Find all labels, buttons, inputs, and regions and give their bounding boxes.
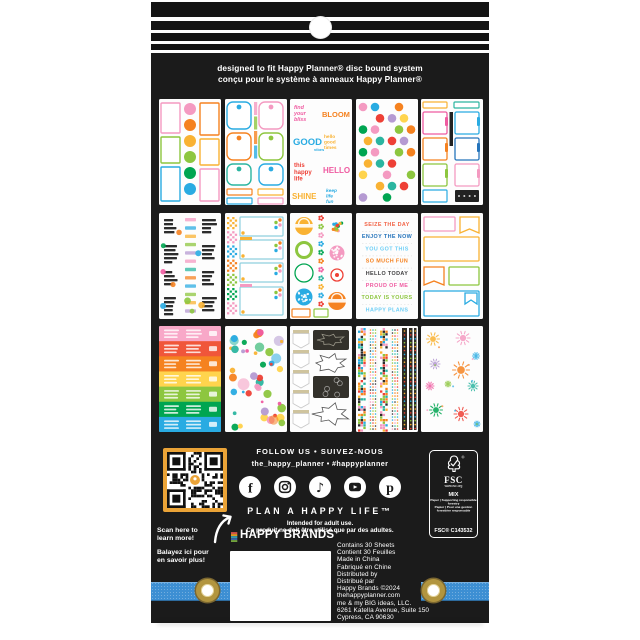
svg-text:times: times — [324, 145, 337, 151]
checker-boxes-sheet — [225, 213, 287, 319]
instagram-icon — [274, 476, 296, 498]
starburst-sheet — [421, 326, 483, 432]
top-stripe — [151, 2, 489, 17]
rainbow-rows-sheet — [159, 326, 221, 432]
svg-text:f: f — [248, 481, 253, 496]
tiktok-icon: ♪ — [309, 476, 331, 498]
word-art-sheet — [159, 213, 221, 319]
info-line: thehappyplanner.com — [337, 592, 429, 599]
sticker-sheet-grid: findyourblissBLOOMGOODvibeshellogoodtime… — [159, 99, 483, 432]
brand-flag-icon — [231, 530, 238, 548]
info-line: Fabriqué en Chine — [337, 564, 429, 571]
svg-text:HELLO: HELLO — [323, 166, 350, 175]
product-info-block: Contains 30 SheetsContient 30 FeuillesMa… — [337, 542, 429, 621]
svg-text:life: life — [294, 177, 303, 183]
follow-section: FOLLOW US • SUIVEZ-NOUS the_happy_planne… — [217, 447, 423, 535]
fsc-grade: MIX — [430, 492, 477, 498]
brand-name: HAPPY BRANDS — [240, 529, 334, 541]
scan-line: Balayez ici pour — [157, 549, 217, 557]
svg-text:HELLO TODAY: HELLO TODAY — [366, 270, 408, 276]
svg-text:PROUD OF ME: PROUD OF ME — [366, 283, 408, 289]
hang-hole — [310, 17, 331, 38]
grommet-left — [196, 579, 219, 602]
page-background: { "header": { "line1": "designed to fit … — [0, 0, 640, 640]
sticker-book-package: designed to fit Happy Planner® disc boun… — [151, 0, 489, 623]
svg-text:happy: happy — [294, 170, 312, 176]
note-tabs-sheet — [421, 99, 483, 205]
svg-text:fun: fun — [326, 199, 334, 205]
confetti-dots-sheet — [225, 326, 287, 432]
polka-dots-sheet — [356, 99, 418, 205]
follow-us-label: FOLLOW US • SUIVEZ-NOUS — [217, 447, 423, 456]
fsc-url: www.fsc.org — [441, 485, 467, 488]
circles-sheet — [290, 213, 352, 319]
svg-text:HAPPY PLANS: HAPPY PLANS — [365, 307, 408, 313]
svg-text:SEIZE THE DAY: SEIZE THE DAY — [364, 222, 409, 228]
info-line: Happy Brands ©2024 — [337, 585, 429, 592]
package-shadow — [157, 622, 483, 625]
pinterest-icon: p — [379, 476, 401, 498]
svg-text:p: p — [386, 481, 394, 496]
info-line: Cypress, CA 90630 — [337, 614, 429, 621]
scan-line: Scan here to — [157, 527, 217, 535]
svg-text:hello: hello — [324, 134, 335, 140]
pocket-tabs-sheet — [225, 99, 287, 205]
svg-text:keep: keep — [326, 188, 337, 194]
info-line: Made in China — [337, 556, 429, 563]
fsc-cert-number: FSC® C143532 — [430, 528, 477, 534]
svg-text:BLOOM: BLOOM — [322, 110, 350, 119]
washi-strips-sheet — [356, 326, 418, 432]
grommet-right — [422, 579, 445, 602]
social-icons-row: f♪p — [217, 476, 423, 498]
boxes-labels-sheet — [159, 99, 221, 205]
svg-text:this: this — [294, 163, 305, 169]
fsc-name: FSC — [430, 475, 477, 485]
tagline: PLAN A HAPPY LIFE™ — [217, 506, 423, 516]
info-line: Contains 30 Sheets — [337, 542, 429, 549]
svg-text:TODAY IS YOURS: TODAY IS YOURS — [361, 295, 412, 301]
svg-text:bliss: bliss — [294, 117, 306, 123]
brand-trademark: ™ — [334, 530, 339, 535]
fsc-line-fr: Papier | Pour une gestion forestière res… — [430, 506, 477, 513]
scan-instructions: Scan here tolearn more!Balayez ici poure… — [157, 527, 217, 566]
svg-text:SHINE: SHINE — [292, 192, 317, 201]
info-line: me & my BIG ideas, LLC. — [337, 600, 429, 607]
compatibility-text: designed to fit Happy Planner® disc boun… — [151, 63, 489, 85]
fsc-certification-label: ® FSC www.fsc.org MIX Paper | Supporting… — [429, 450, 478, 538]
svg-text:®: ® — [462, 455, 465, 460]
facebook-icon: f — [239, 476, 261, 498]
fsc-line-en: Paper | Supporting responsible forestry — [430, 499, 477, 506]
fsc-description: Paper | Supporting responsible forestry … — [430, 499, 477, 513]
youtube-icon — [344, 476, 366, 498]
info-line: Distributed by — [337, 571, 429, 578]
arrows-splats-sheet — [290, 326, 352, 432]
info-line: Contient 30 Feuilles — [337, 549, 429, 556]
phrase-list-sheet: SEIZE THE DAYENJOY THE NOWYOU GOT THISSO… — [356, 213, 418, 319]
word-stickers-sheet: findyourblissBLOOMGOODvibeshellogoodtime… — [290, 99, 352, 205]
svg-text:good: good — [324, 140, 336, 146]
svg-text:YOU GOT THIS: YOU GOT THIS — [365, 246, 408, 252]
top-stripe — [151, 44, 489, 50]
scan-line: en savoir plus! — [157, 557, 217, 565]
svg-text:SO MUCH FUN: SO MUCH FUN — [366, 258, 408, 264]
social-handle: the_happy_planner • #happyplanner — [217, 459, 423, 468]
svg-text:♪: ♪ — [316, 480, 324, 495]
scan-line: learn more! — [157, 535, 217, 543]
adult-use-en: Intended for adult use. — [217, 520, 423, 528]
svg-text:ENJOY THE NOW: ENJOY THE NOW — [362, 234, 413, 240]
barcode-area — [230, 551, 331, 621]
info-line: 6261 Katella Avenue, Suite 150 — [337, 607, 429, 614]
compatibility-line-fr: conçu pour le système à anneaux Happy Pl… — [151, 74, 489, 85]
svg-text:life: life — [326, 194, 333, 200]
compatibility-line-en: designed to fit Happy Planner® disc boun… — [151, 63, 489, 74]
happy-brands-logo: HAPPY BRANDS ™ — [231, 529, 339, 548]
boxes-banners-sheet — [421, 213, 483, 319]
